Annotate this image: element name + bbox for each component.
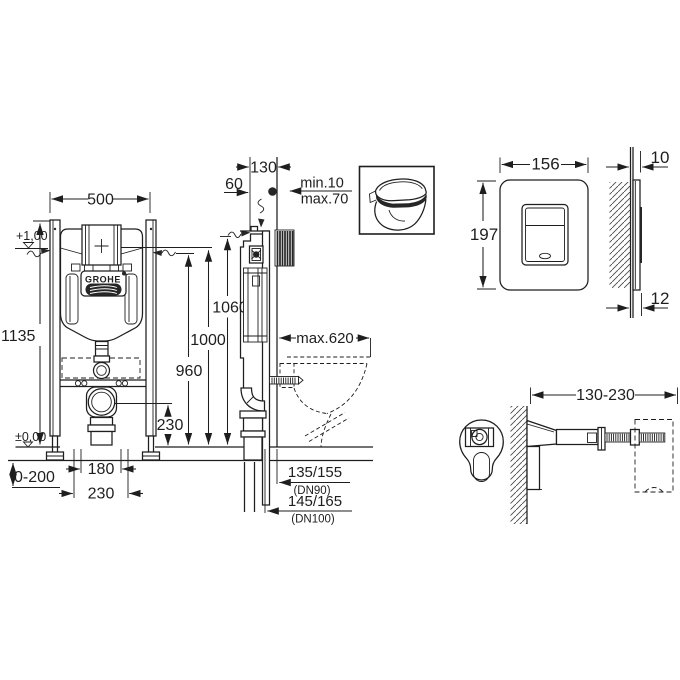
dim-plate-width: 156 (531, 155, 559, 174)
grohe-badge: GROHE (81, 271, 126, 296)
bowl-depth-dim: max.620 (279, 330, 370, 357)
break-arrow-down (258, 199, 265, 228)
dim-outlet-width: 180 (88, 461, 115, 478)
wall-min-label: min.10 (300, 176, 344, 192)
flush-pipe (94, 342, 110, 379)
frame-front-view: 500 1135 +1,00 (1, 192, 373, 503)
dim-plate-depth-bottom: 12 (651, 289, 670, 308)
access-window (82, 225, 121, 265)
drain-dn100-dim: 145/165 (DN100) (267, 493, 352, 526)
dim-top-offset: 60 (225, 176, 243, 193)
crossbar (60, 380, 146, 387)
drain-dn100-label: 145/165 (288, 493, 342, 510)
toilet-reference-box (360, 167, 435, 235)
level-mark-upper: +1,00 (15, 229, 48, 249)
floor-range-dim: 0-200 (12, 463, 60, 488)
dim-bracket-range: 130-230 (576, 387, 635, 404)
flush-channel (244, 268, 268, 342)
flush-plate-side-view: 10 12 (606, 147, 669, 318)
installation-drawing: 500 1135 +1,00 (0, 0, 680, 680)
fixing-bolt (250, 246, 264, 263)
plate-side-profile (633, 180, 640, 290)
dashed-rail-outline (635, 420, 673, 493)
wall-max-label: max.70 (301, 192, 349, 208)
crossbar-bolts (75, 381, 127, 386)
brand-label: GROHE (85, 275, 121, 285)
break-arrow-left (27, 248, 51, 257)
dim-floor-range: 0-200 (14, 469, 55, 486)
dim-frame-width: 500 (87, 192, 114, 209)
dn100-label: (DN100) (291, 514, 335, 526)
dim-bowl-depth: max.620 (296, 330, 354, 347)
flush-button (522, 205, 568, 266)
threaded-rod (270, 377, 304, 385)
drain-outlet (87, 387, 117, 445)
supply-point-dot (268, 187, 277, 196)
wall-anchor-block (275, 230, 294, 266)
drain-dn90-label: 135/155 (288, 464, 342, 481)
level-mark-floor: ±0,00 (15, 430, 46, 447)
wall-bracket-side-view: 130-230 (511, 387, 678, 524)
level-upper-label: +1,00 (16, 229, 48, 243)
dim-plate-height: 197 (470, 225, 498, 244)
dim-drain-height: 230 (157, 417, 184, 434)
page: 500 1135 +1,00 (0, 0, 680, 680)
dim-frame-depth: 130 (250, 160, 277, 177)
dashed-bowl-outline (280, 357, 371, 447)
wall-bracket-front-view (460, 420, 504, 482)
wall-hatch-bracket (511, 406, 528, 524)
frame-side-view: 130 60 min.10 max.70 (224, 157, 371, 526)
dim-h1: 1060 (212, 300, 248, 317)
dim-h3: 960 (176, 363, 203, 380)
dim-plate-depth-top: 10 (651, 148, 670, 167)
flush-plate-front-view: 156 197 (470, 155, 588, 291)
wall-hatch-plate (610, 182, 631, 288)
dim-h2: 1000 (190, 332, 226, 349)
dim-outlet-spacing: 230 (88, 486, 115, 503)
dim-total-height: 1135 (1, 328, 36, 345)
